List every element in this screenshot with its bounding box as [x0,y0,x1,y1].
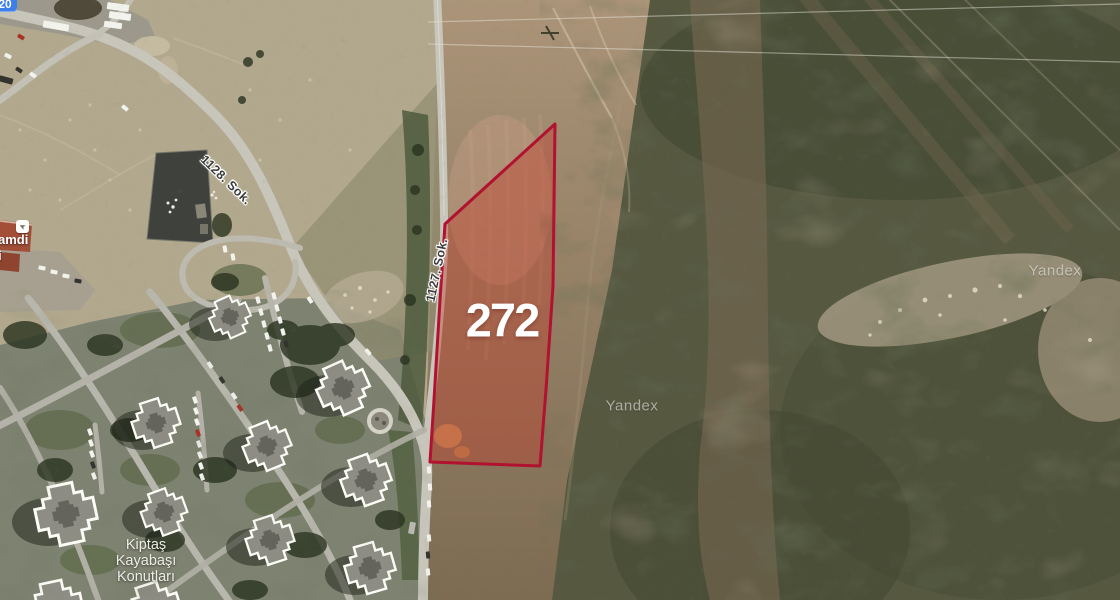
satellite-map [0,0,1120,600]
map-viewport[interactable]: 272 1127. Sok. 1128. Sok. Kiptaş Kayabaş… [0,0,1120,600]
road-number-badge: 20 [0,0,17,12]
poi-arrow-icon[interactable]: ➤ [16,220,29,233]
texture-overlays [0,0,1120,600]
